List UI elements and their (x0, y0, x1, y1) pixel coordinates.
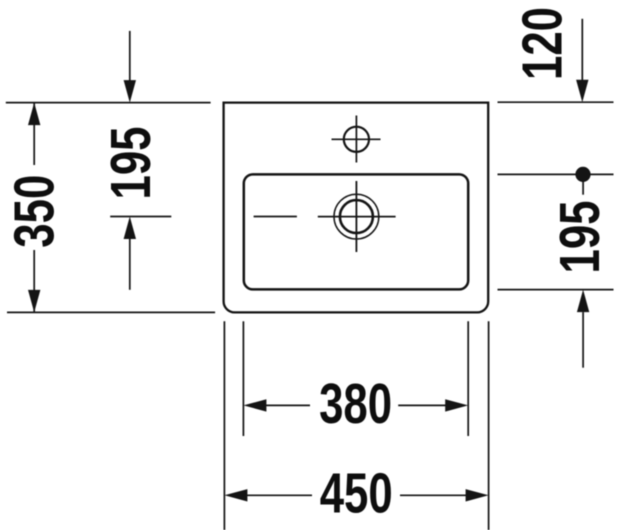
svg-text:450: 450 (320, 462, 393, 525)
svg-text:195: 195 (99, 127, 162, 200)
svg-text:120: 120 (510, 7, 573, 80)
svg-text:380: 380 (319, 372, 392, 435)
svg-text:195: 195 (548, 201, 611, 274)
svg-text:350: 350 (2, 175, 65, 248)
